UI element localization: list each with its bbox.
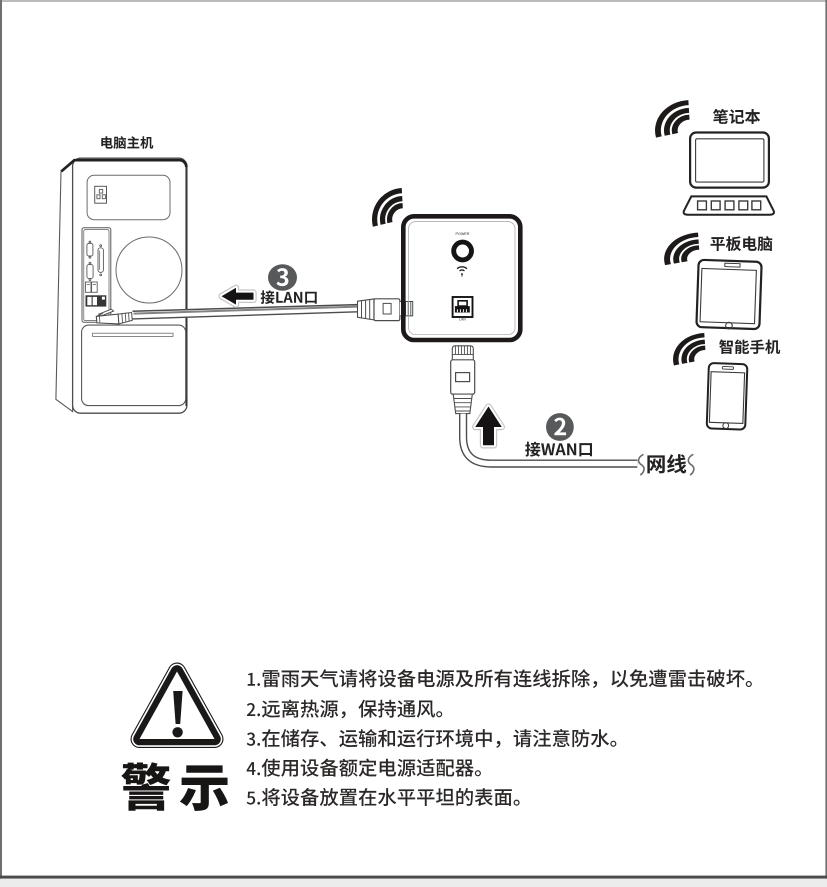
svg-text:LAN: LAN — [459, 318, 466, 322]
svg-text:POWER: POWER — [456, 232, 470, 236]
